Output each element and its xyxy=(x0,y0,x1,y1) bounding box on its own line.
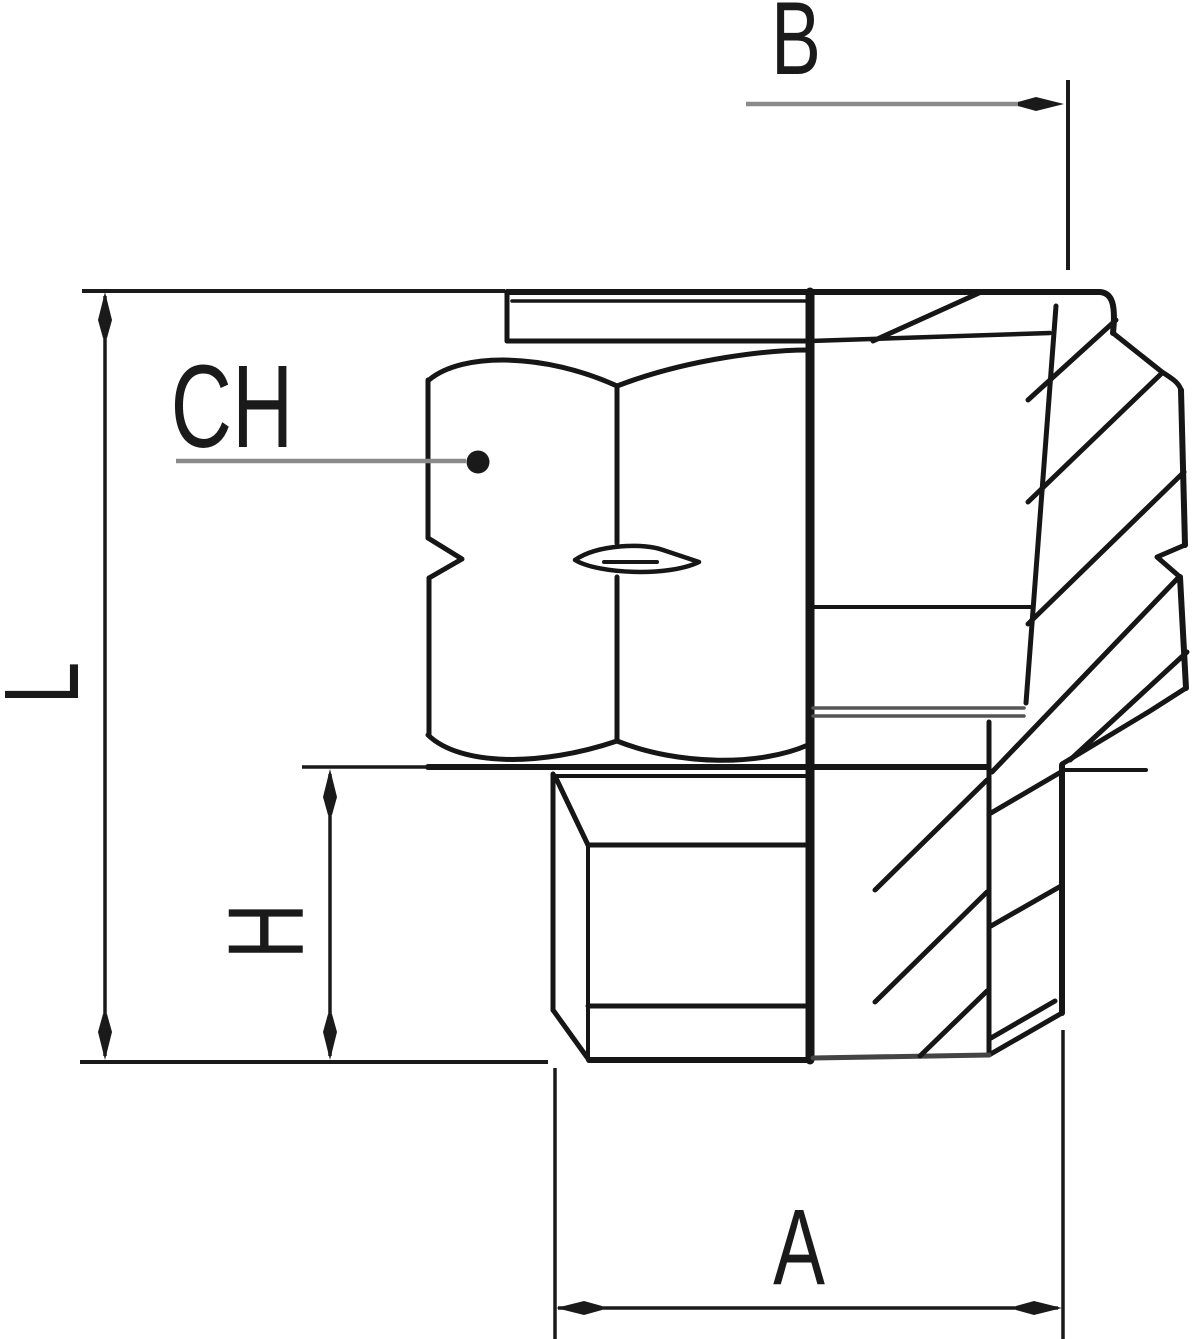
arrow-up-icon xyxy=(98,292,112,338)
arrow-up-icon xyxy=(323,769,337,815)
part-outline xyxy=(428,292,1187,1060)
arrow-down-icon xyxy=(323,1014,337,1060)
fitting-drawing: B CH L H A xyxy=(0,0,1200,1339)
technical-drawing-canvas: B CH L H A xyxy=(0,0,1200,1339)
dimension-A: A xyxy=(555,1030,1063,1339)
hex-nut xyxy=(428,350,988,767)
leader-dot-icon xyxy=(467,451,490,474)
hex-waist-notch xyxy=(428,538,462,578)
arrow-right-icon xyxy=(1018,97,1064,111)
dimension-CH: CH xyxy=(171,340,490,473)
male-thread-upper xyxy=(813,293,1187,772)
arrow-left-icon xyxy=(556,1301,602,1315)
dimension-B: B xyxy=(746,0,1068,270)
arrow-down-icon xyxy=(98,1014,112,1060)
thread-break-zigzag xyxy=(1157,545,1185,577)
arrow-right-icon xyxy=(1016,1301,1062,1315)
hex-waist-lens xyxy=(575,546,699,572)
lower-thread-lines xyxy=(875,772,1061,1056)
dim-label-ch: CH xyxy=(171,340,294,472)
dim-label-a: A xyxy=(773,1186,825,1307)
dim-label-h: H xyxy=(205,903,326,959)
dim-label-b: B xyxy=(771,0,821,97)
dimension-H: H xyxy=(205,767,426,1060)
dim-label-l: L xyxy=(0,662,101,704)
upper-thread-lines xyxy=(873,293,1187,772)
